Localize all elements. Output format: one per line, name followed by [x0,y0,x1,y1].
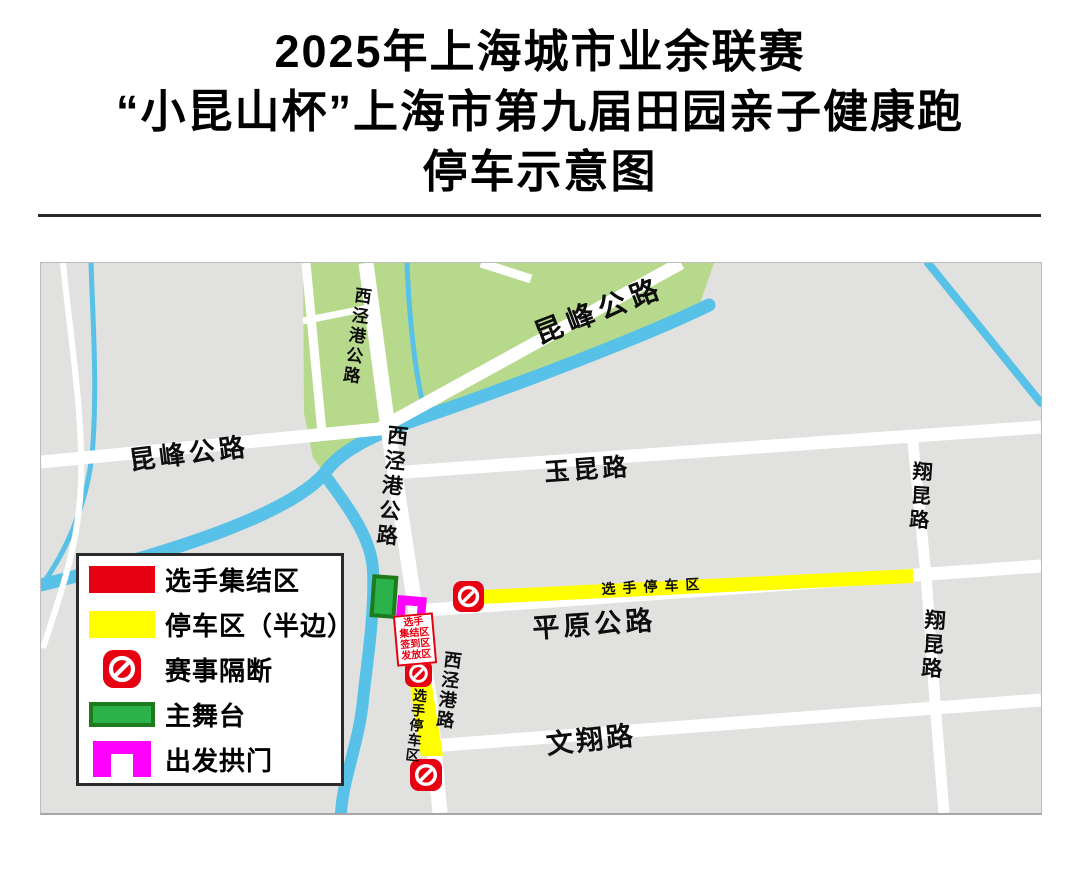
assembly-area-swatch [79,566,165,593]
legend-label: 主舞台 [165,696,246,733]
legend-item-barrier: 赛事隔断 [79,647,341,691]
start-arch-swatch [79,741,165,777]
road-label-yukun: 玉昆路 [543,447,632,489]
parking-area-swatch [79,611,165,638]
title-line-2: “小昆山杯”上海市第九届田园亲子健康跑 [0,82,1080,142]
legend-item-parking: 停车区（半边） [79,602,341,646]
title-line-3: 停车示意图 [0,142,1080,202]
parking-map: 昆峰公路 昆峰公路 西泾港公路 西泾港公路 玉昆路 翔昆路 翔昆路 平原公路 西… [40,262,1042,815]
legend-item-arch: 出发拱门 [79,737,341,781]
legend-label: 赛事隔断 [165,651,273,688]
legend: 选手集结区 停车区（半边） 赛事隔断 主舞台 出发拱门 [76,553,344,786]
road-label-xiangkun-upper: 翔昆路 [902,460,936,534]
main-stage-marker [372,576,397,616]
legend-label: 出发拱门 [165,741,273,778]
assembly-sign-line: 发放区 [398,648,435,662]
title-divider [38,214,1041,217]
barrier-icon-south [410,759,442,791]
no-entry-icon [79,650,165,688]
legend-label: 停车区（半边） [165,606,354,643]
legend-item-assembly: 选手集结区 [79,557,341,601]
assembly-area-sign: 选手 集结区 签到区 发放区 [393,612,437,666]
page-title: 2025年上海城市业余联赛 “小昆山杯”上海市第九届田园亲子健康跑 停车示意图 [0,22,1080,202]
title-line-1: 2025年上海城市业余联赛 [0,22,1080,82]
barrier-icon-pingyuan [453,581,484,612]
main-stage-swatch [79,702,165,727]
road-label-xiangkun-lower: 翔昆路 [914,608,949,682]
legend-label: 选手集结区 [165,561,300,598]
poster-page: 2025年上海城市业余联赛 “小昆山杯”上海市第九届田园亲子健康跑 停车示意图 [0,0,1080,876]
legend-item-stage: 主舞台 [79,692,341,736]
